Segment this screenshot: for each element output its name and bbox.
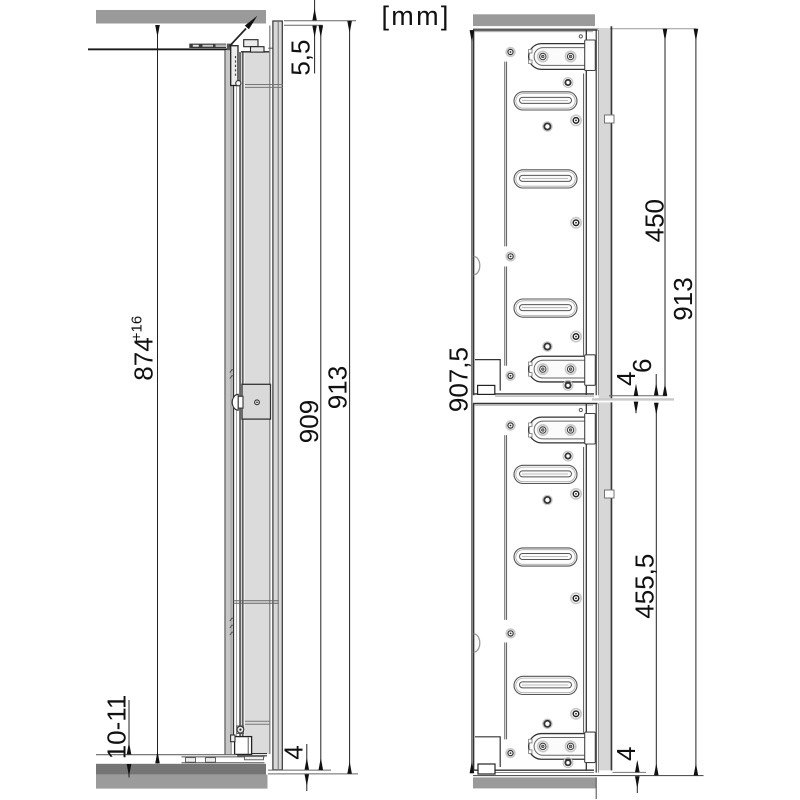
svg-text:+16: +16 xyxy=(129,316,146,341)
svg-text:4: 4 xyxy=(278,745,308,759)
svg-text:6: 6 xyxy=(627,359,657,373)
svg-text:455,5: 455,5 xyxy=(630,554,660,619)
svg-text:450: 450 xyxy=(640,199,670,242)
svg-text:913: 913 xyxy=(668,277,698,320)
svg-text:907,5: 907,5 xyxy=(443,347,473,412)
svg-text:5,5: 5,5 xyxy=(286,40,316,76)
svg-text:4: 4 xyxy=(611,372,641,386)
svg-text:874: 874 xyxy=(129,337,159,380)
svg-text:10-11: 10-11 xyxy=(102,695,132,760)
svg-text:913: 913 xyxy=(323,366,353,409)
svg-text:[mm]: [mm] xyxy=(382,1,451,31)
svg-text:909: 909 xyxy=(294,400,324,443)
svg-text:4: 4 xyxy=(611,747,641,761)
